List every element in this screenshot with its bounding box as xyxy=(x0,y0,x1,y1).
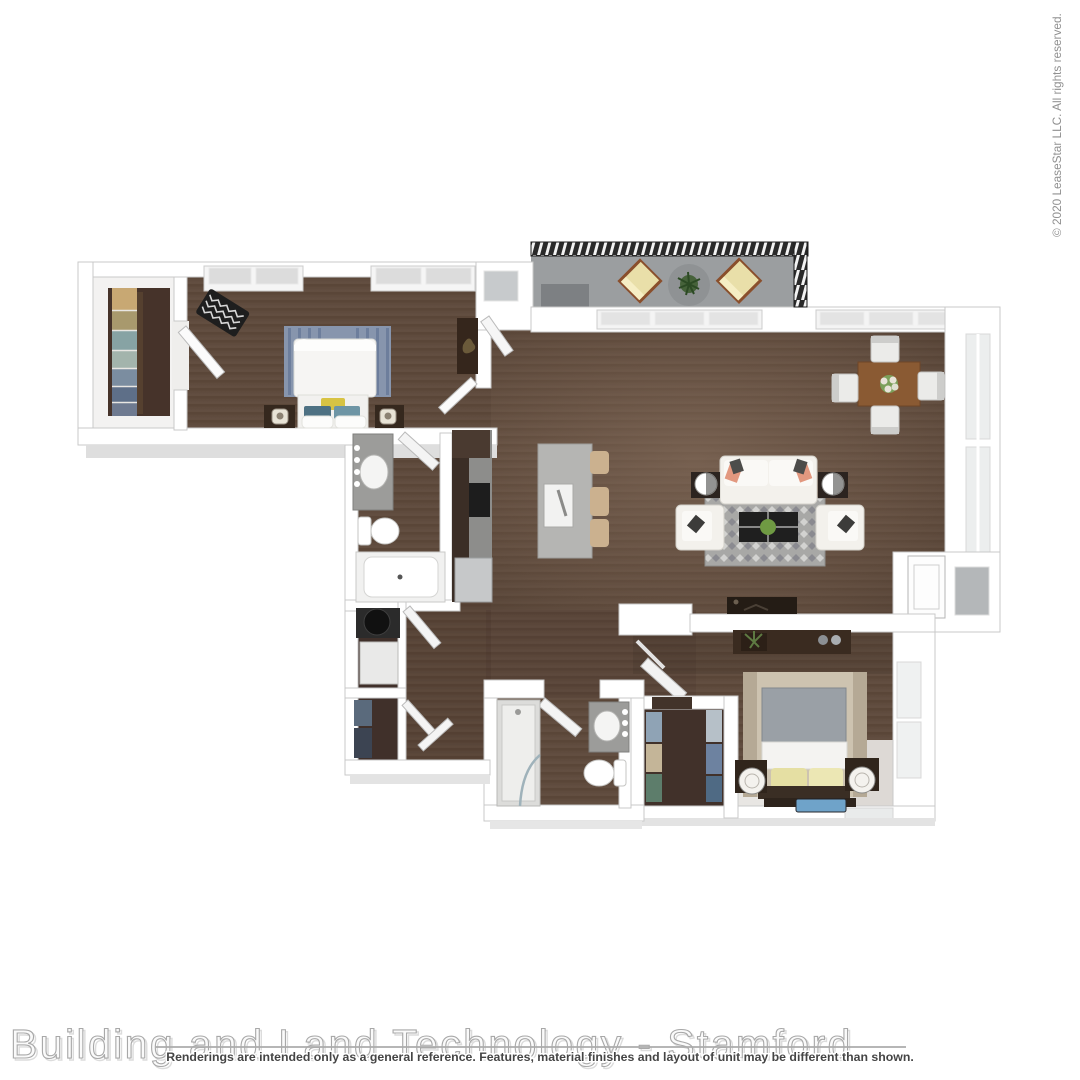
svg-text:Renderings are intended only a: Renderings are intended only as a genera… xyxy=(166,1050,914,1064)
svg-text:© 2020 LeaseStar LLC. All righ: © 2020 LeaseStar LLC. All rights reserve… xyxy=(1050,13,1064,237)
